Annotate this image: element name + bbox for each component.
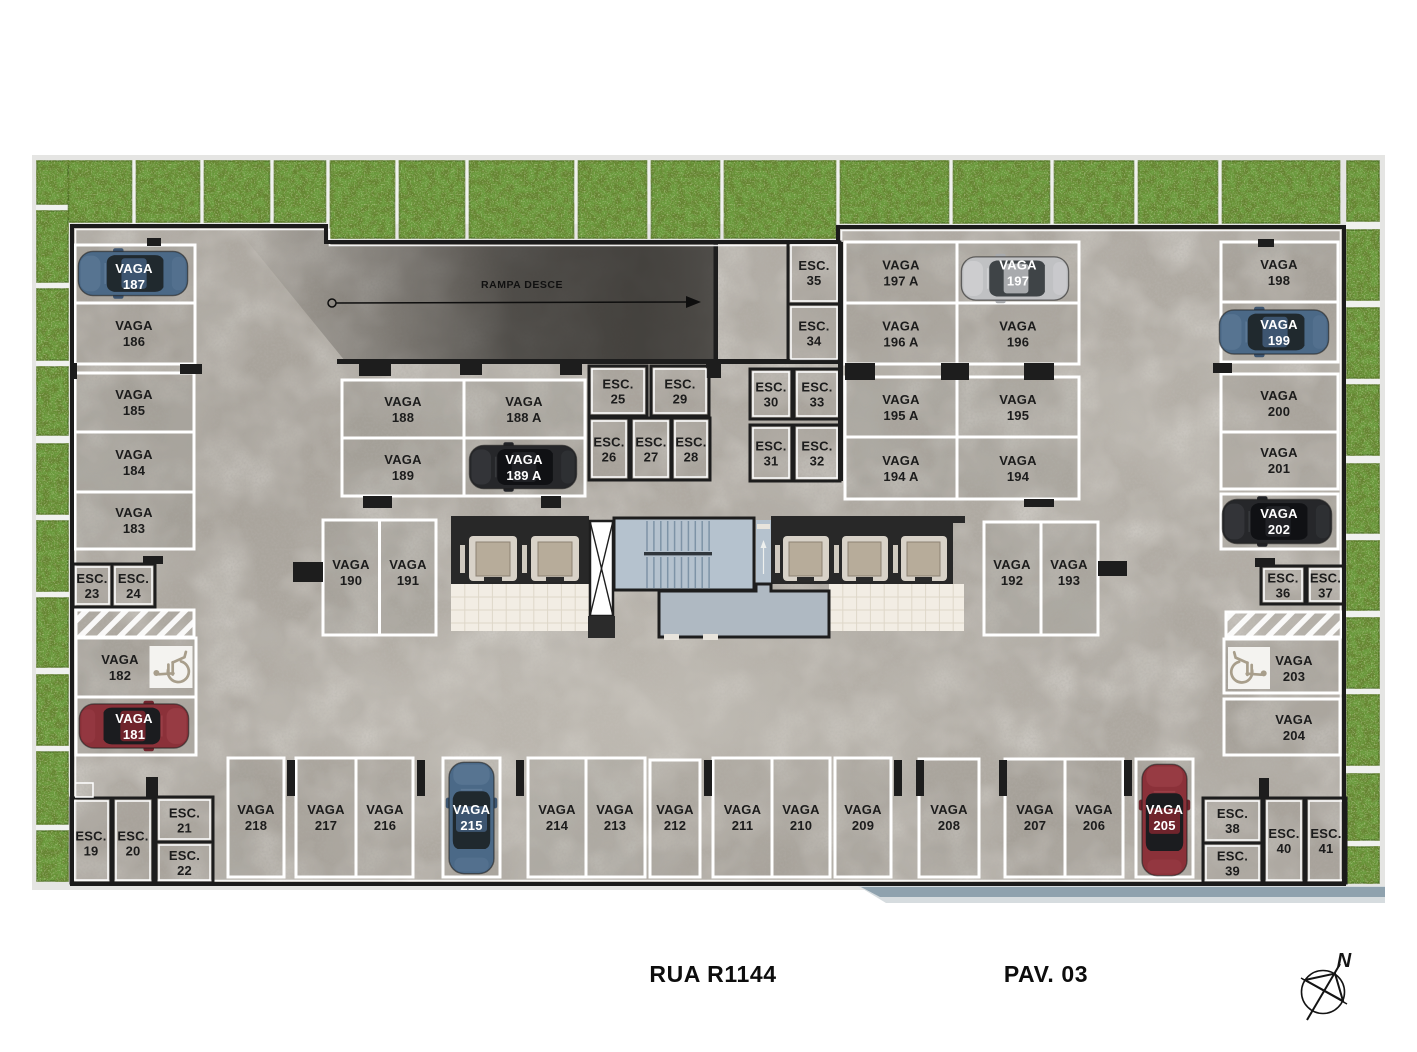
svg-text:VAGA: VAGA [453,802,491,817]
svg-text:34: 34 [807,334,822,349]
svg-text:VAGA: VAGA [384,394,422,409]
svg-text:24: 24 [126,586,141,601]
svg-text:VAGA: VAGA [115,447,153,462]
svg-text:213: 213 [604,818,626,833]
svg-text:ESC.: ESC. [675,435,706,450]
svg-text:VAGA: VAGA [993,557,1031,572]
svg-text:VAGA: VAGA [882,258,920,273]
svg-text:189 A: 189 A [506,468,542,483]
svg-text:VAGA: VAGA [596,802,634,817]
svg-text:40: 40 [1277,841,1292,856]
svg-text:VAGA: VAGA [930,802,968,817]
svg-text:216: 216 [374,818,396,833]
svg-text:RAMPA DESCE: RAMPA DESCE [481,279,563,291]
svg-text:200: 200 [1268,404,1290,419]
svg-text:36: 36 [1276,586,1291,601]
svg-text:ESC.: ESC. [801,380,832,395]
svg-text:197: 197 [1007,274,1029,289]
svg-text:29: 29 [673,392,688,407]
svg-text:191: 191 [397,573,419,588]
svg-text:ESC.: ESC. [117,829,148,844]
svg-text:206: 206 [1083,818,1105,833]
svg-text:190: 190 [340,573,362,588]
svg-text:ESC.: ESC. [798,319,829,334]
svg-text:ESC.: ESC. [75,829,106,844]
svg-text:20: 20 [126,844,141,859]
svg-text:VAGA: VAGA [999,258,1037,273]
svg-text:189: 189 [392,468,414,483]
svg-text:22: 22 [177,863,192,878]
svg-text:30: 30 [764,395,779,410]
svg-text:195: 195 [1007,408,1029,423]
svg-text:ESC.: ESC. [76,571,107,586]
svg-text:N: N [1337,950,1352,972]
svg-text:205: 205 [1153,818,1175,833]
svg-text:VAGA: VAGA [115,505,153,520]
svg-text:VAGA: VAGA [1275,653,1313,668]
svg-text:ESC.: ESC. [118,571,149,586]
svg-text:VAGA: VAGA [1050,557,1088,572]
svg-text:RUA R1144: RUA R1144 [649,961,776,987]
svg-text:VAGA: VAGA [237,802,275,817]
svg-text:23: 23 [85,586,100,601]
svg-text:194 A: 194 A [883,469,919,484]
svg-text:38: 38 [1225,821,1240,836]
svg-text:211: 211 [732,818,754,833]
svg-text:185: 185 [123,403,145,418]
svg-text:VAGA: VAGA [782,802,820,817]
svg-text:37: 37 [1318,586,1333,601]
svg-text:31: 31 [764,454,779,469]
svg-text:195 A: 195 A [883,408,919,423]
svg-text:VAGA: VAGA [332,557,370,572]
svg-text:VAGA: VAGA [999,319,1037,334]
svg-text:187: 187 [123,277,145,292]
svg-text:183: 183 [123,521,145,536]
svg-text:182: 182 [109,668,131,683]
svg-text:19: 19 [84,844,99,859]
svg-text:VAGA: VAGA [1016,802,1054,817]
svg-text:ESC.: ESC. [169,848,200,863]
svg-text:ESC.: ESC. [169,806,200,821]
svg-text:VAGA: VAGA [1260,388,1298,403]
svg-text:41: 41 [1319,841,1334,856]
svg-text:202: 202 [1268,522,1290,537]
svg-text:197 A: 197 A [883,274,919,289]
svg-text:ESC.: ESC. [602,377,633,392]
svg-text:VAGA: VAGA [999,392,1037,407]
svg-text:32: 32 [810,454,825,469]
svg-text:218: 218 [245,818,267,833]
svg-text:VAGA: VAGA [999,453,1037,468]
svg-text:208: 208 [938,818,960,833]
svg-text:VAGA: VAGA [1260,257,1298,272]
svg-text:ESC.: ESC. [1310,826,1341,841]
svg-text:193: 193 [1058,573,1080,588]
svg-text:VAGA: VAGA [505,394,543,409]
svg-text:VAGA: VAGA [844,802,882,817]
svg-text:VAGA: VAGA [656,802,694,817]
svg-text:VAGA: VAGA [1146,802,1184,817]
svg-text:VAGA: VAGA [538,802,576,817]
svg-text:203: 203 [1283,669,1305,684]
svg-text:VAGA: VAGA [1260,317,1298,332]
svg-text:VAGA: VAGA [384,452,422,467]
svg-text:ESC.: ESC. [798,258,829,273]
svg-text:215: 215 [460,818,482,833]
svg-text:ESC.: ESC. [635,435,666,450]
svg-text:VAGA: VAGA [115,261,153,276]
svg-text:33: 33 [810,395,825,410]
svg-text:ESC.: ESC. [664,377,695,392]
svg-text:VAGA: VAGA [505,452,543,467]
svg-text:201: 201 [1268,461,1290,476]
svg-text:204: 204 [1283,728,1306,743]
svg-text:ESC.: ESC. [1310,571,1341,586]
svg-text:196 A: 196 A [883,335,919,350]
svg-text:194: 194 [1007,469,1030,484]
svg-text:ESC.: ESC. [1217,849,1248,864]
svg-text:VAGA: VAGA [882,453,920,468]
svg-text:210: 210 [790,818,812,833]
svg-text:188 A: 188 A [506,410,542,425]
svg-text:209: 209 [852,818,874,833]
svg-text:VAGA: VAGA [882,392,920,407]
svg-text:207: 207 [1024,818,1046,833]
svg-text:VAGA: VAGA [882,319,920,334]
svg-text:198: 198 [1268,273,1290,288]
svg-text:217: 217 [315,818,337,833]
svg-text:25: 25 [611,392,626,407]
svg-text:VAGA: VAGA [1075,802,1113,817]
svg-text:186: 186 [123,334,145,349]
svg-text:VAGA: VAGA [115,318,153,333]
svg-text:VAGA: VAGA [115,387,153,402]
svg-text:212: 212 [664,818,686,833]
svg-text:26: 26 [602,450,617,465]
svg-text:VAGA: VAGA [101,652,139,667]
svg-text:ESC.: ESC. [593,435,624,450]
svg-text:VAGA: VAGA [1275,712,1313,727]
svg-text:184: 184 [123,463,146,478]
svg-text:VAGA: VAGA [1260,445,1298,460]
svg-text:ESC.: ESC. [1268,826,1299,841]
svg-text:181: 181 [123,727,145,742]
svg-text:VAGA: VAGA [366,802,404,817]
svg-text:ESC.: ESC. [801,439,832,454]
svg-text:35: 35 [807,273,822,288]
svg-text:VAGA: VAGA [307,802,345,817]
svg-text:192: 192 [1001,573,1023,588]
svg-text:28: 28 [684,450,699,465]
svg-text:ESC.: ESC. [1217,806,1248,821]
svg-text:ESC.: ESC. [1267,571,1298,586]
svg-text:ESC.: ESC. [755,380,786,395]
svg-text:VAGA: VAGA [724,802,762,817]
svg-text:196: 196 [1007,335,1029,350]
svg-text:39: 39 [1225,864,1240,879]
svg-text:27: 27 [644,450,659,465]
svg-text:PAV. 03: PAV. 03 [1004,961,1088,987]
svg-text:VAGA: VAGA [389,557,427,572]
svg-text:VAGA: VAGA [115,711,153,726]
svg-text:21: 21 [177,821,192,836]
svg-text:ESC.: ESC. [755,439,786,454]
svg-text:214: 214 [546,818,569,833]
svg-text:VAGA: VAGA [1260,506,1298,521]
svg-text:199: 199 [1268,333,1290,348]
svg-text:188: 188 [392,410,414,425]
